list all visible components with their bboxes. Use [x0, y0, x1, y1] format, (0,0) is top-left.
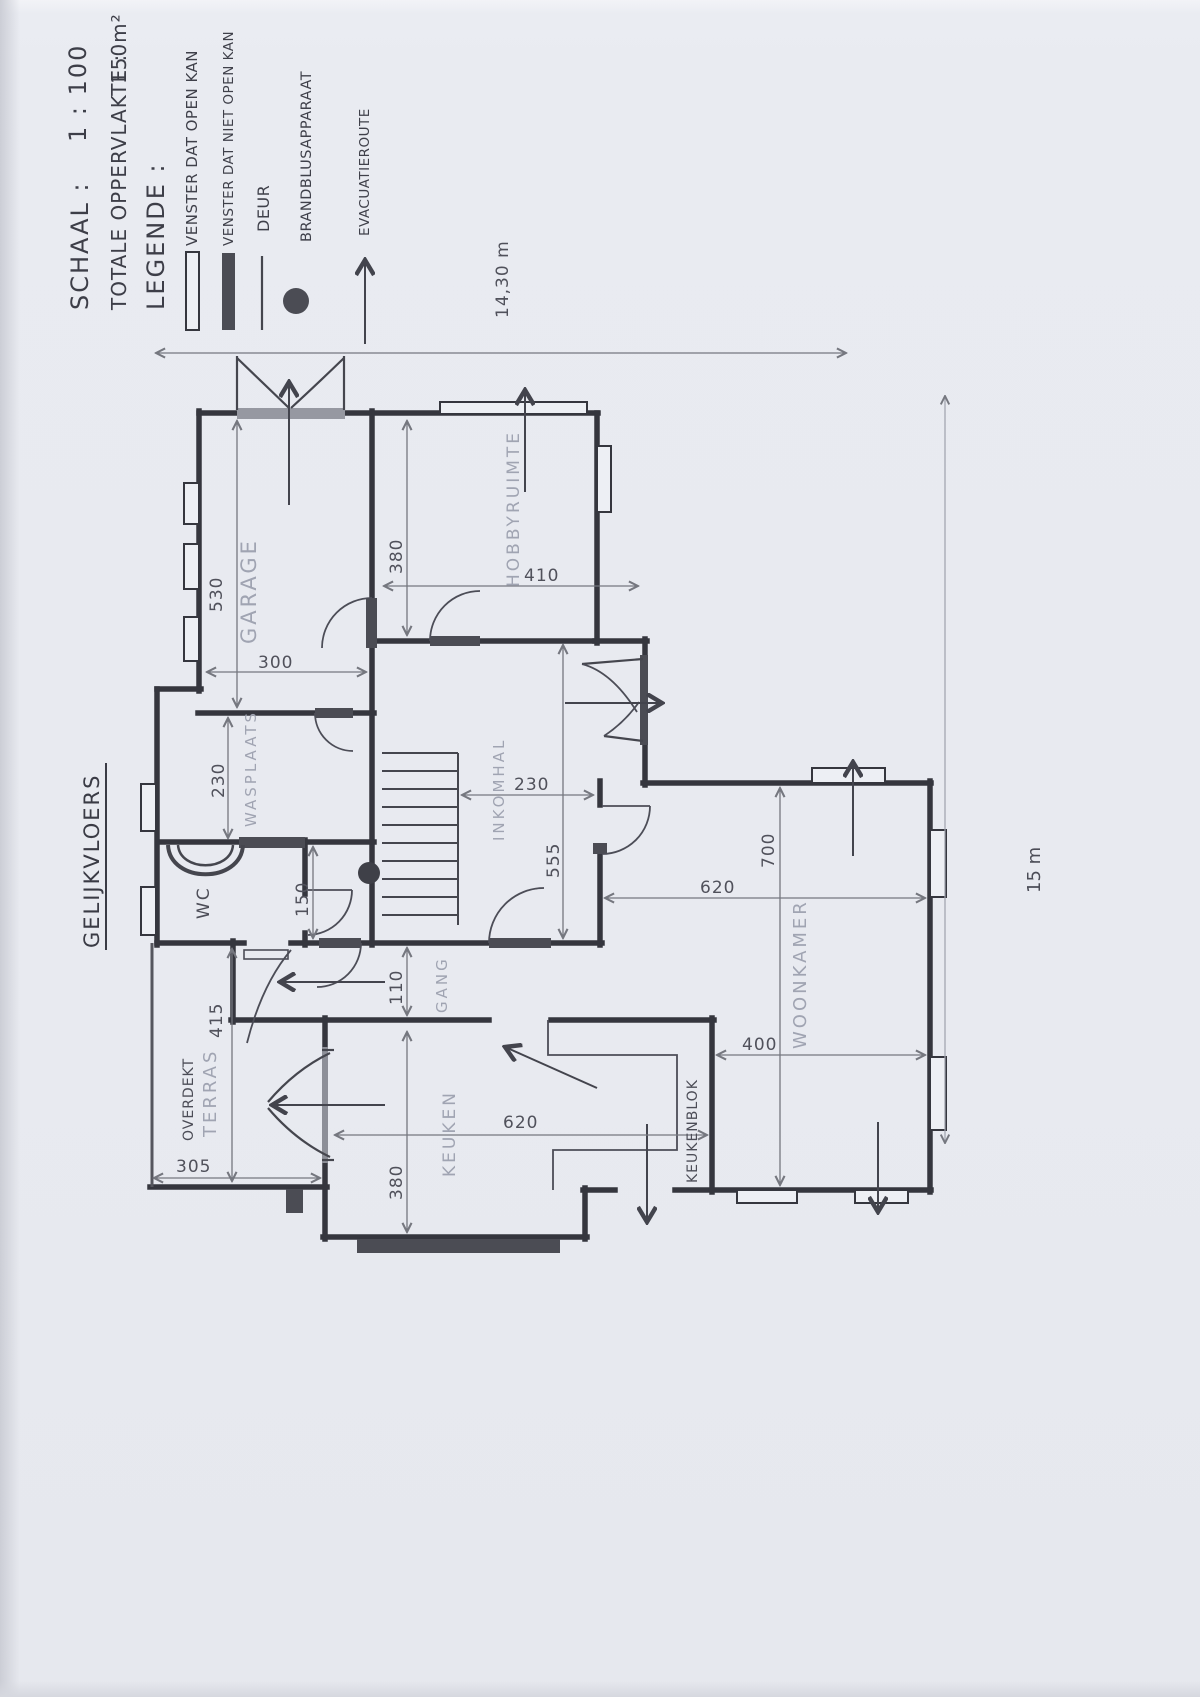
front-door-swing [582, 664, 637, 712]
dim-label: 110 [387, 970, 407, 1005]
dim-label: 530 [207, 577, 227, 612]
dim-label: 380 [387, 539, 407, 574]
terras-column [286, 1189, 303, 1213]
window [855, 1190, 908, 1203]
door-leaf [244, 950, 288, 959]
window [737, 1190, 797, 1203]
dim-label: 700 [759, 833, 779, 868]
evacuation-arrow [505, 1047, 597, 1088]
dim-label: 300 [258, 653, 293, 673]
room-label-wasplaats: WASPLAATS [242, 710, 260, 827]
window [812, 768, 885, 783]
windows [141, 402, 946, 1203]
kitchen-counter [548, 1020, 677, 1190]
room-label-inkomhal: INKOMHAL [490, 738, 508, 841]
overall-width-label: 14,30 m [493, 240, 513, 318]
room-label-wc: WC [194, 886, 214, 919]
window [597, 446, 611, 512]
door-swing [602, 806, 650, 854]
dim-label: 230 [209, 763, 229, 798]
area-value: 150m² [107, 13, 131, 84]
floorplan-drawing: SCHAAL : 1 : 100 TOTALE OPPERVLAKTE : 15… [0, 0, 1200, 1697]
dim-label: 230 [514, 775, 549, 795]
toilet-inner [178, 845, 233, 865]
window [184, 617, 199, 661]
window [184, 483, 199, 524]
open-window-icon [186, 252, 199, 330]
door-threshold [430, 636, 480, 646]
legend-label-door: DEUR [254, 185, 273, 232]
floor-label: GELIJKVLOERS [80, 763, 106, 950]
door-swing [247, 950, 291, 1043]
door-swing [489, 888, 544, 943]
door-threshold [315, 708, 353, 718]
door-swing [322, 598, 372, 648]
room-label-garage: GARAGE [237, 538, 261, 644]
evacuation-routes [272, 382, 878, 1222]
staircase [382, 753, 458, 925]
fixed-window-strip [357, 1239, 560, 1253]
floor-label-text: GELIJKVLOERS [80, 774, 104, 948]
room-label-woonkamer: WOONKAMER [790, 899, 811, 1049]
window [141, 887, 156, 935]
room-label-keuken: KEUKEN [440, 1090, 460, 1177]
scale-value: 1 : 100 [64, 44, 92, 142]
door-swing [315, 713, 353, 751]
legend-label-evacuation: EVACUATIEROUTE [357, 108, 373, 236]
window [930, 1057, 946, 1130]
door-swing [430, 591, 480, 641]
fixed-window-icon [222, 253, 235, 330]
door-threshold [319, 938, 361, 948]
fire-extinguisher-icon [283, 288, 309, 314]
scan-edge-shadow-bottom [0, 1681, 1200, 1697]
legend-title: LEGENDE : [142, 162, 170, 310]
window [930, 830, 946, 897]
title-block: SCHAAL : 1 : 100 TOTALE OPPERVLAKTE : 15… [64, 13, 373, 344]
dim-label: 620 [700, 878, 735, 898]
room-label-overdekt: OVERDEKT [181, 1058, 197, 1141]
scan-edge-shadow-left [0, 0, 20, 1697]
area-label: TOTALE OPPERVLAKTE : [107, 54, 131, 311]
front-door-leaf [604, 736, 643, 741]
room-labels: GARAGE HOBBYRUIMTE WASPLAATS WC INKOMHAL… [181, 430, 811, 1183]
terras-door-swing [268, 1053, 330, 1102]
room-label-gang: GANG [433, 956, 451, 1013]
window [440, 402, 587, 414]
window [141, 784, 156, 831]
walls [150, 411, 931, 1239]
garage-door-swing [291, 358, 344, 408]
door-swing [317, 943, 361, 987]
doors [237, 356, 650, 1160]
fire-extinguisher-icon [358, 862, 380, 884]
dimension-lines [154, 353, 945, 1232]
legend-label-fixed-window: VENSTER DAT NIET OPEN KAN [221, 31, 237, 246]
room-label-keukenblok: KEUKENBLOK [685, 1079, 701, 1183]
dim-label: 305 [176, 1157, 211, 1177]
dim-label: 150 [293, 882, 313, 917]
terras-door-swing [268, 1108, 330, 1157]
door-swing [308, 890, 352, 935]
scale-label: SCHAAL : [66, 181, 94, 310]
legend-label-open-window: VENSTER DAT OPEN KAN [183, 50, 201, 246]
dim-label: 415 [207, 1003, 227, 1038]
overall-height-label: 15 m [1024, 847, 1045, 893]
garage-door-swing [237, 358, 289, 408]
dim-label: 410 [524, 566, 559, 586]
dim-label: 380 [387, 1165, 407, 1200]
door-threshold [593, 843, 607, 854]
room-label-hobbyruimte: HOBBYRUIMTE [504, 430, 524, 587]
garage-door-threshold [237, 408, 345, 419]
front-door-leaf [582, 659, 643, 664]
dim-label: 400 [742, 1035, 777, 1055]
legend-label-extinguisher: BRANDBLUSAPPARAAT [299, 71, 315, 242]
door-threshold [239, 837, 305, 848]
front-door-threshold [640, 655, 648, 745]
door-threshold [489, 938, 551, 948]
dim-label: 620 [503, 1113, 538, 1133]
window [184, 544, 199, 589]
scanned-floorplan-sheet: SCHAAL : 1 : 100 TOTALE OPPERVLAKTE : 15… [0, 0, 1200, 1697]
door-threshold [366, 598, 377, 648]
dimension-labels: 300 410 230 620 400 620 305 530 380 230 … [176, 240, 1045, 1200]
dim-label: 555 [544, 843, 564, 878]
room-label-terras: TERRAS [200, 1049, 221, 1138]
